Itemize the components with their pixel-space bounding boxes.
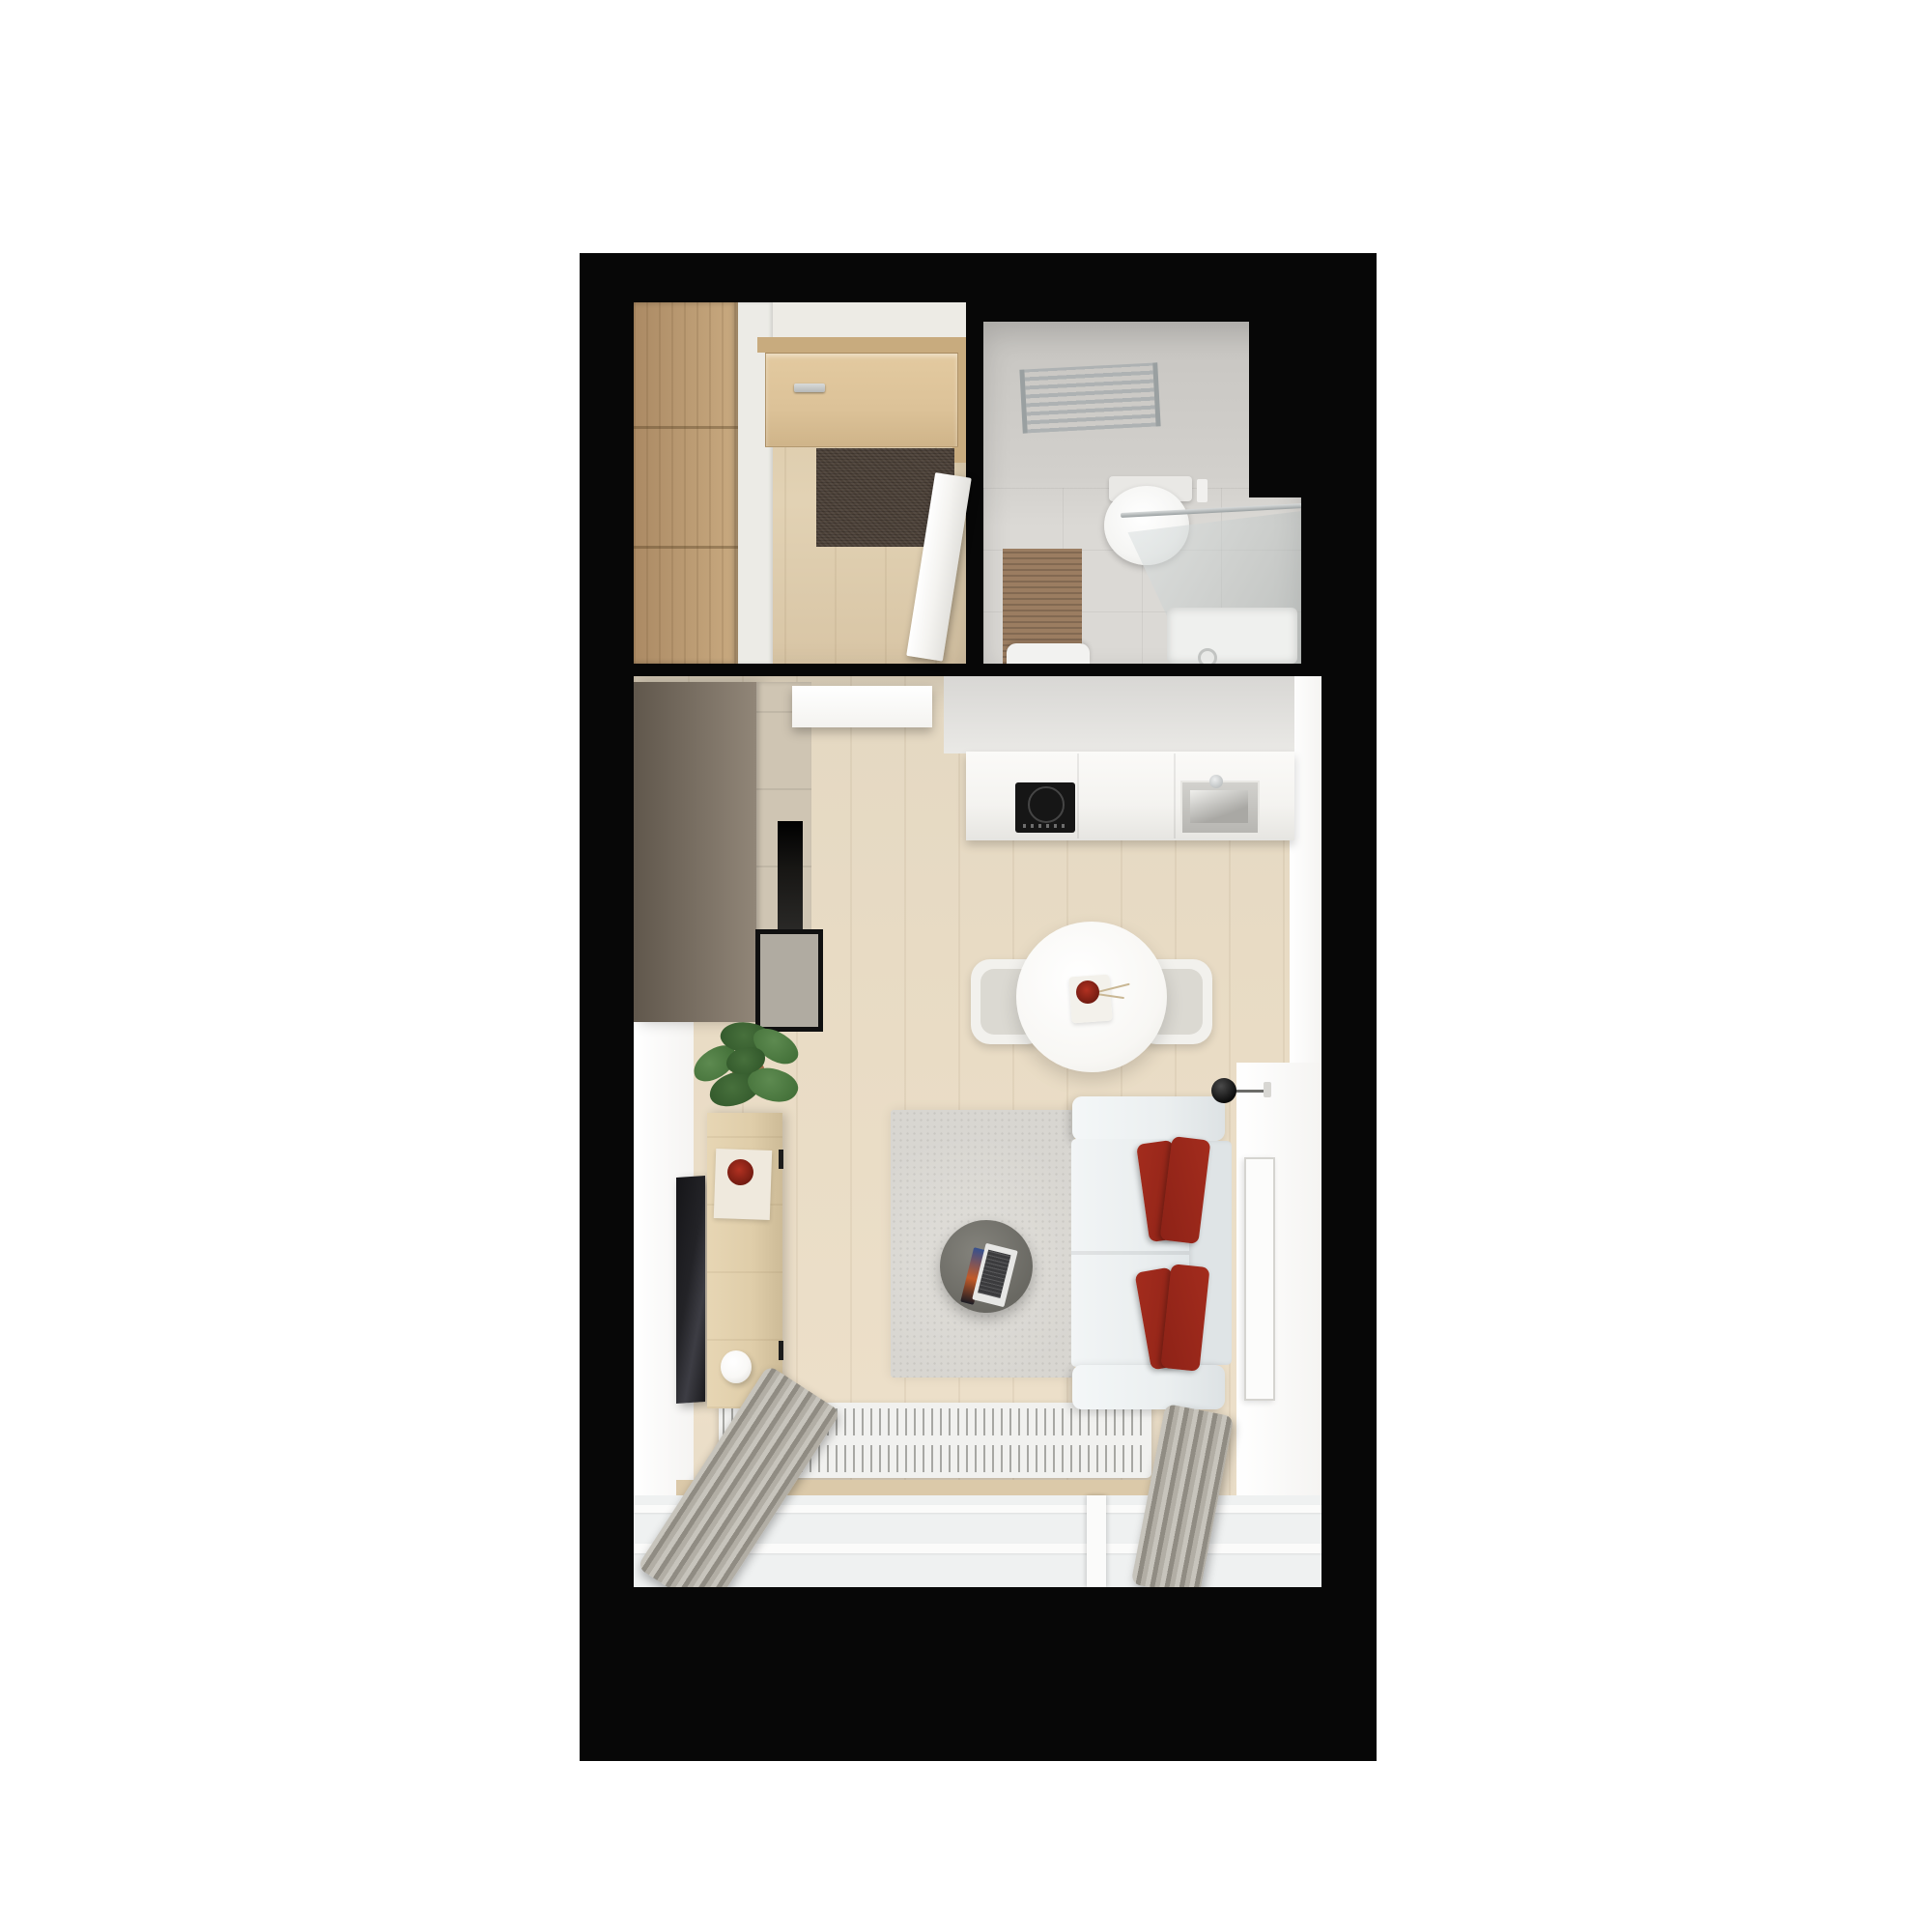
flush-plate [1197,479,1207,502]
sideboard-handle [779,1150,783,1169]
potted-plant [692,1022,804,1122]
red-vase [1076,980,1099,1004]
floorplan-render [0,0,1932,1932]
wardrobe-shelf-seam [634,426,738,429]
kitchen-backsplash [944,676,1294,753]
window-mullion [1087,1495,1106,1587]
burner-ring-icon [1028,786,1065,823]
kitchen-sink [1180,781,1260,835]
induction-cooktop [1015,782,1075,833]
living-door-open [792,686,932,727]
hallway-wardrobe [634,302,738,664]
counter-seam [1174,753,1176,838]
sink-basin [1190,790,1248,823]
tall-kitchen-units [634,682,756,1022]
wall-lamp-mount [1264,1082,1271,1097]
white-jug [721,1350,752,1383]
built-in-oven [778,821,803,939]
wall-lamp-arm [1235,1090,1265,1093]
counter-seam [1077,753,1079,838]
entrance-door [765,353,958,447]
room-hallway [634,302,966,664]
sideboard-handle [779,1341,783,1360]
sofa-armrest-bottom [1072,1365,1225,1409]
laptop-keyboard [978,1250,1010,1298]
entrance-door-frame-top [757,337,966,353]
wall-lamp [1211,1078,1236,1103]
wall-mounted-tv [676,1176,705,1404]
wardrobe-shelf-seam [634,546,738,549]
shower-tray [1167,608,1297,664]
sofa-seat-seam [1071,1251,1189,1255]
red-bowl [727,1159,753,1185]
sofa-armrest-top [1072,1096,1225,1141]
room-living [634,676,1321,1587]
towel-radiator [1019,362,1160,433]
entrance-door-handle-icon [794,384,825,392]
faucet-icon [1209,775,1223,788]
cooktop-controls [1023,824,1067,828]
picture-frame [1244,1157,1275,1401]
washbasin [1007,643,1090,664]
appliance-panel [755,929,823,1032]
